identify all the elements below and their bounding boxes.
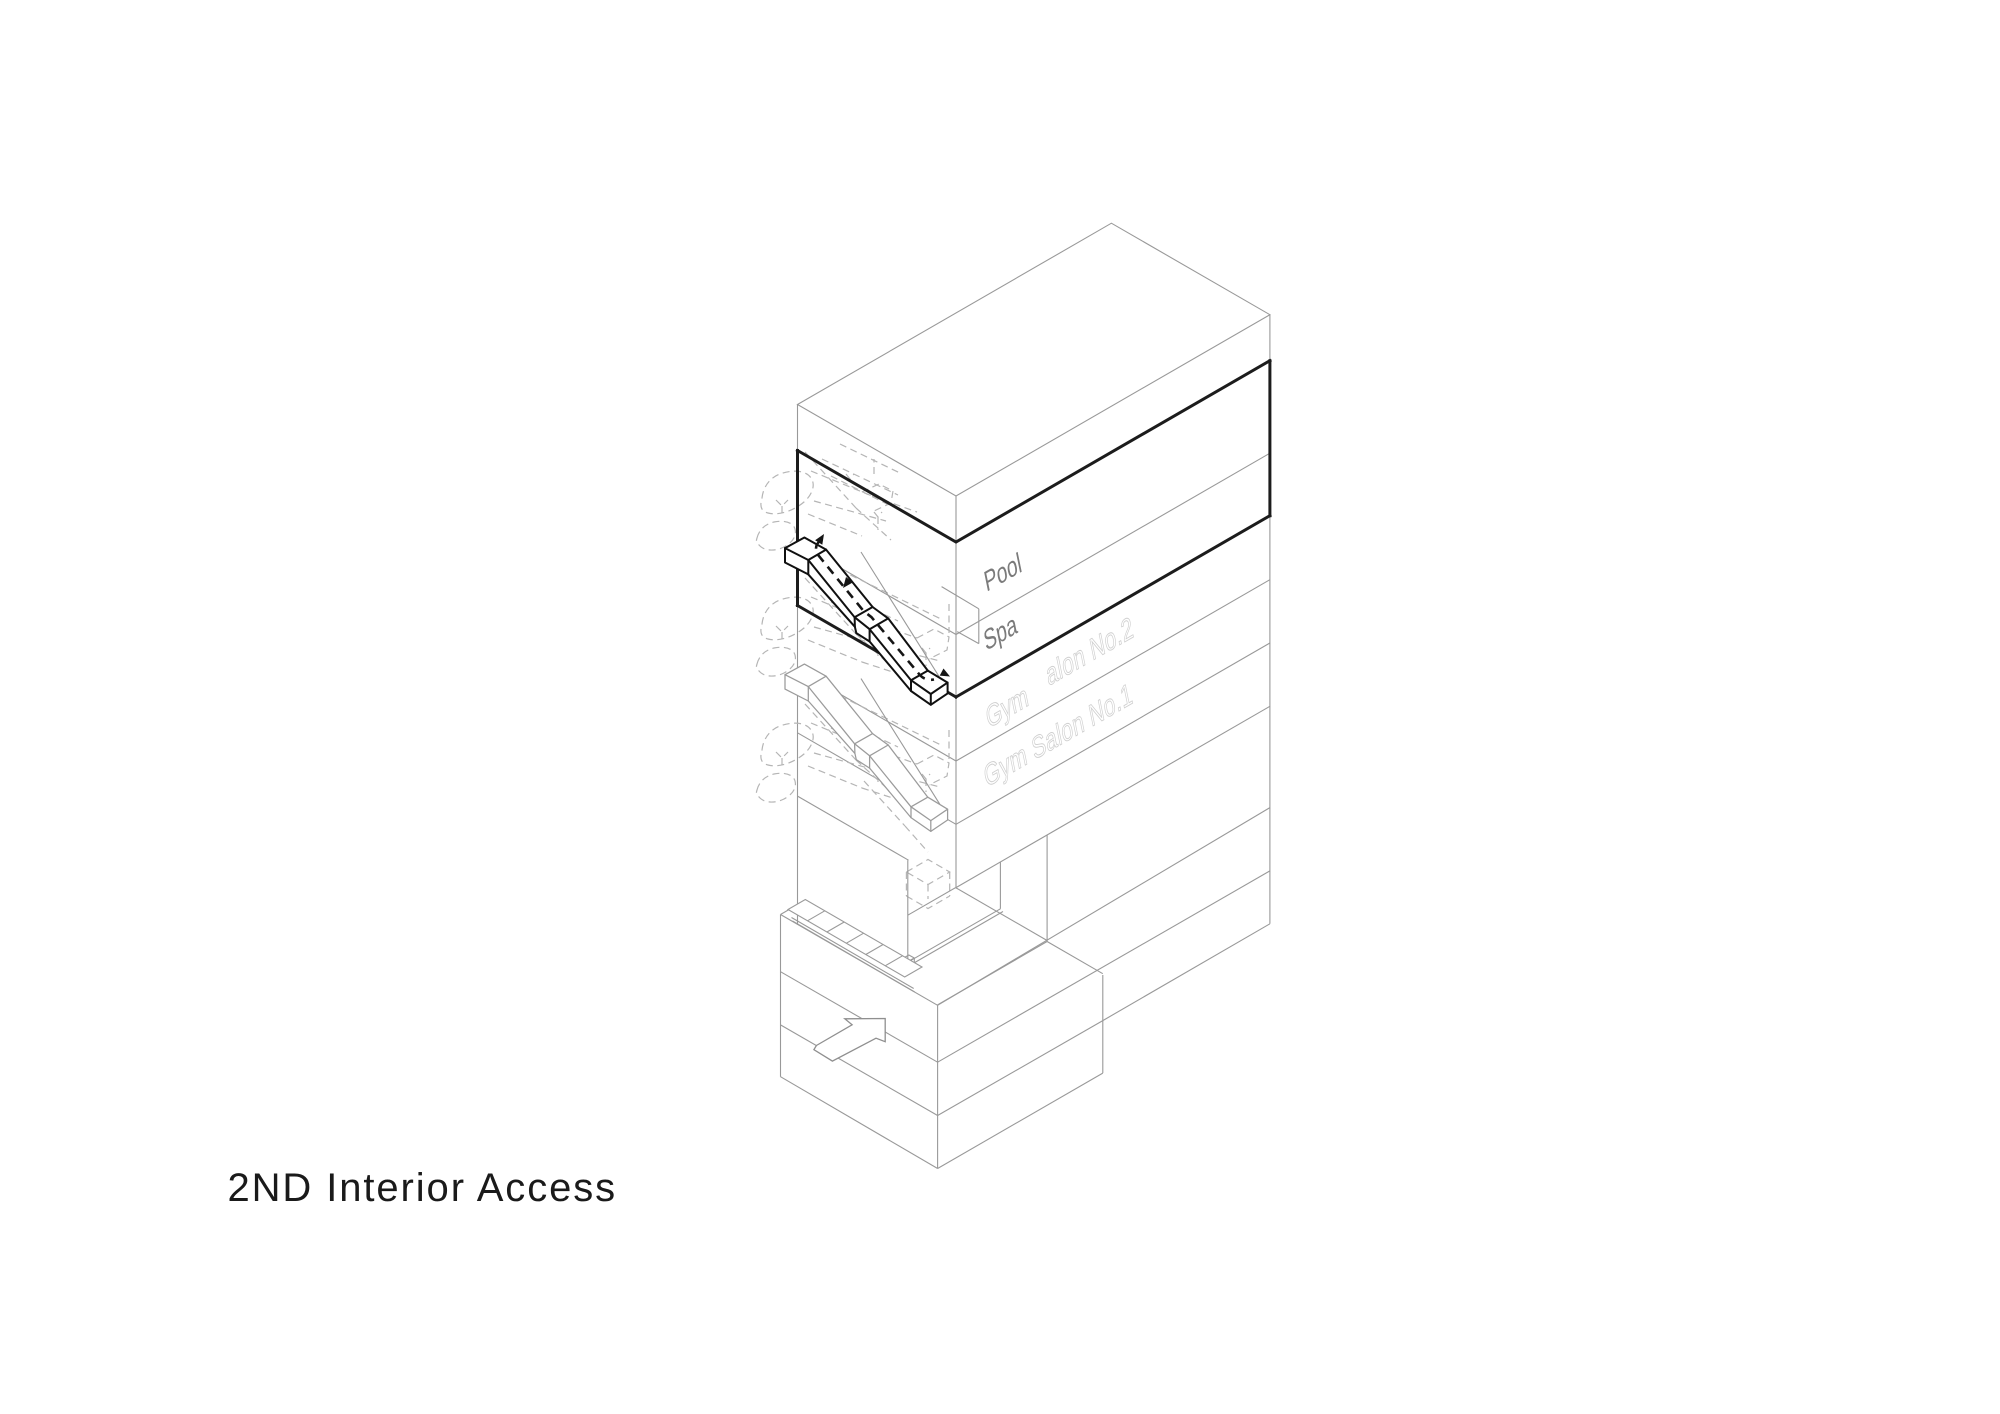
svg-text:2ND Interior Access: 2ND Interior Access [228,1166,618,1210]
